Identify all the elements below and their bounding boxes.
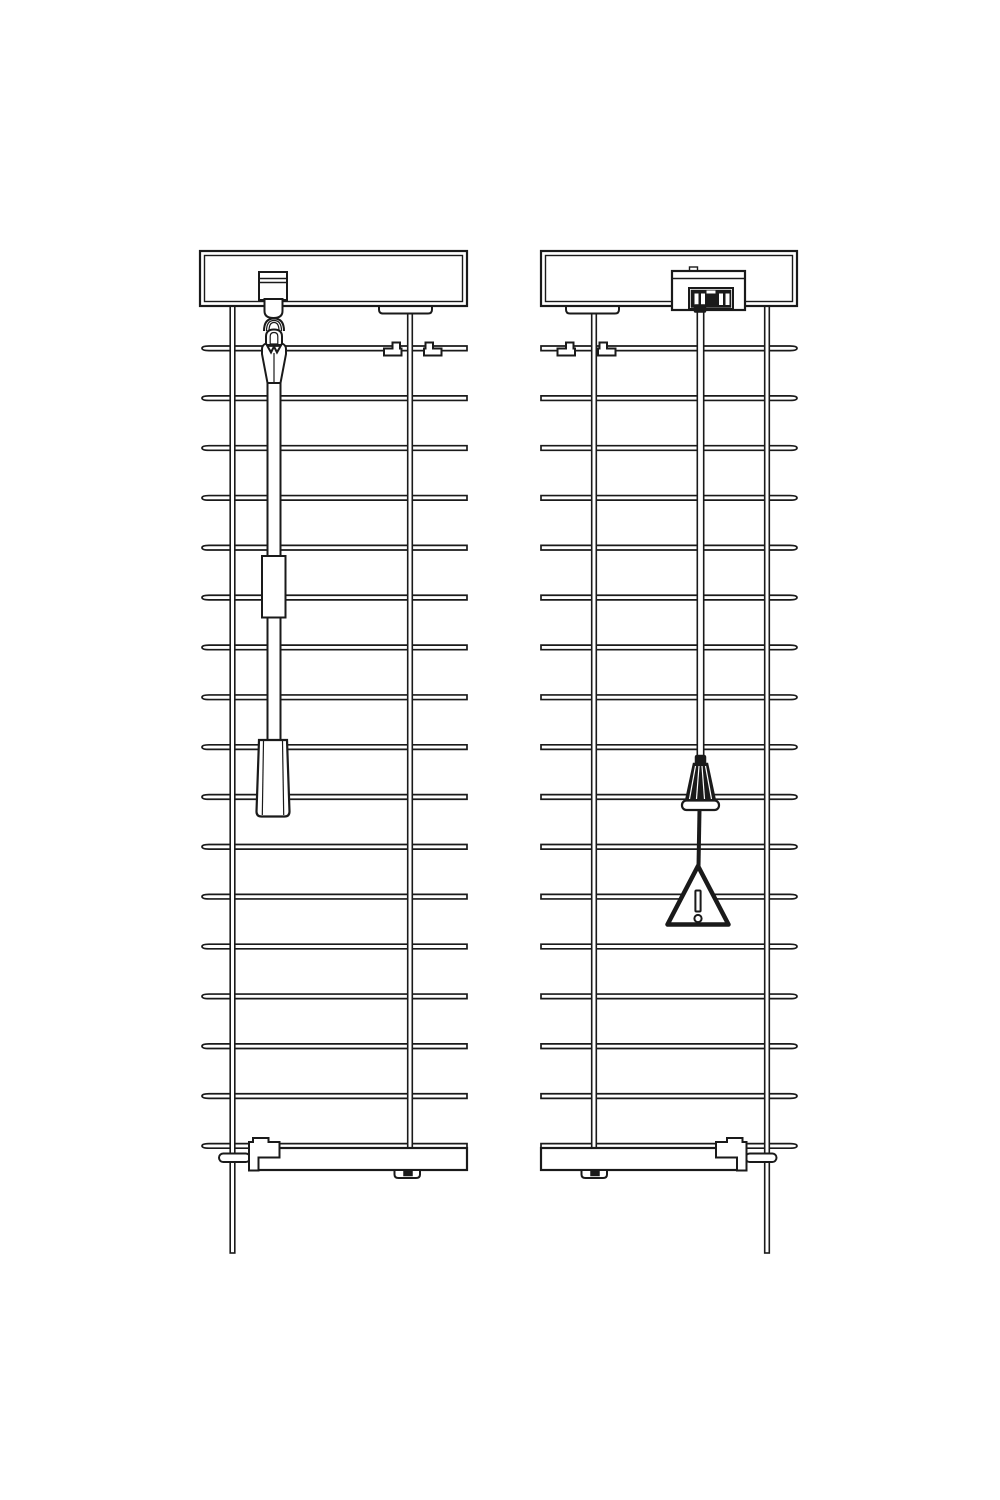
ladder-cord	[408, 311, 413, 1150]
ladder-cord	[765, 306, 770, 1253]
right-blind-slats	[541, 346, 797, 1148]
slat-clip	[598, 343, 616, 356]
right-headrail	[541, 251, 797, 306]
slat	[202, 695, 467, 700]
ladder-cord	[230, 306, 235, 1253]
wand-handle	[257, 740, 290, 817]
slat	[541, 795, 797, 800]
blinds-diagram	[0, 0, 1000, 1500]
tilt-wand-assembly	[257, 272, 290, 817]
ladder-exit-tab	[566, 306, 619, 314]
ladder-exit-tab	[379, 306, 432, 314]
slat	[202, 795, 467, 800]
exclamation-bar	[695, 891, 700, 912]
cord-end-stub	[404, 1170, 412, 1176]
slat	[541, 1094, 797, 1099]
slat	[541, 745, 797, 750]
cord-end-stub	[591, 1170, 599, 1176]
slat	[541, 994, 797, 999]
left-headrail	[200, 251, 467, 306]
slat	[541, 845, 797, 850]
ladder-cord	[592, 311, 597, 1150]
wand-hanger-tongue	[265, 299, 283, 318]
slat	[202, 944, 467, 949]
slat	[541, 1044, 797, 1049]
slat	[202, 994, 467, 999]
slat	[541, 346, 797, 351]
slat	[541, 545, 797, 550]
right-bottom-rail	[541, 1148, 744, 1170]
slat-clip	[424, 343, 442, 356]
wand-eyelet	[266, 330, 282, 346]
wand-hanger-bracket	[259, 272, 287, 300]
slat	[541, 446, 797, 451]
cord-lock-highlight	[707, 291, 716, 294]
slat	[202, 496, 467, 501]
slat	[541, 894, 797, 899]
right-headrail-box	[541, 251, 797, 306]
wand-sleeve	[262, 556, 286, 618]
slat	[541, 944, 797, 949]
cord-lock-exit	[695, 305, 706, 312]
slat	[541, 595, 797, 600]
slat	[202, 745, 467, 750]
exclamation-dot	[694, 915, 701, 922]
slat	[202, 595, 467, 600]
slat	[541, 645, 797, 650]
slat	[541, 695, 797, 700]
slat	[541, 496, 797, 501]
slat	[202, 396, 467, 401]
bottom-rail-pin	[219, 1154, 250, 1163]
tassel-cord	[699, 810, 700, 866]
left-blind-slats	[202, 346, 467, 1148]
cord-lock	[672, 267, 745, 310]
left-headrail-box	[200, 251, 467, 306]
bottom-rail-pin	[746, 1154, 777, 1163]
slat	[202, 446, 467, 451]
lift-cord	[697, 309, 703, 762]
cord-lock-roller-slot	[726, 294, 730, 306]
tassel-flange	[682, 801, 719, 811]
left-bottom-rail	[257, 1148, 467, 1170]
slat	[541, 396, 797, 401]
diagram-canvas	[0, 0, 1000, 1500]
slat	[202, 845, 467, 850]
slat-clip	[558, 343, 576, 356]
slat	[202, 645, 467, 650]
slat-clip	[384, 343, 402, 356]
cord-lock-roller-slot	[695, 294, 699, 306]
cord-lock-roller-slot	[701, 294, 705, 306]
slat	[202, 1044, 467, 1049]
slat	[202, 545, 467, 550]
slat	[202, 1094, 467, 1099]
cord-lock-roller-slot	[719, 294, 723, 306]
slat	[202, 894, 467, 899]
